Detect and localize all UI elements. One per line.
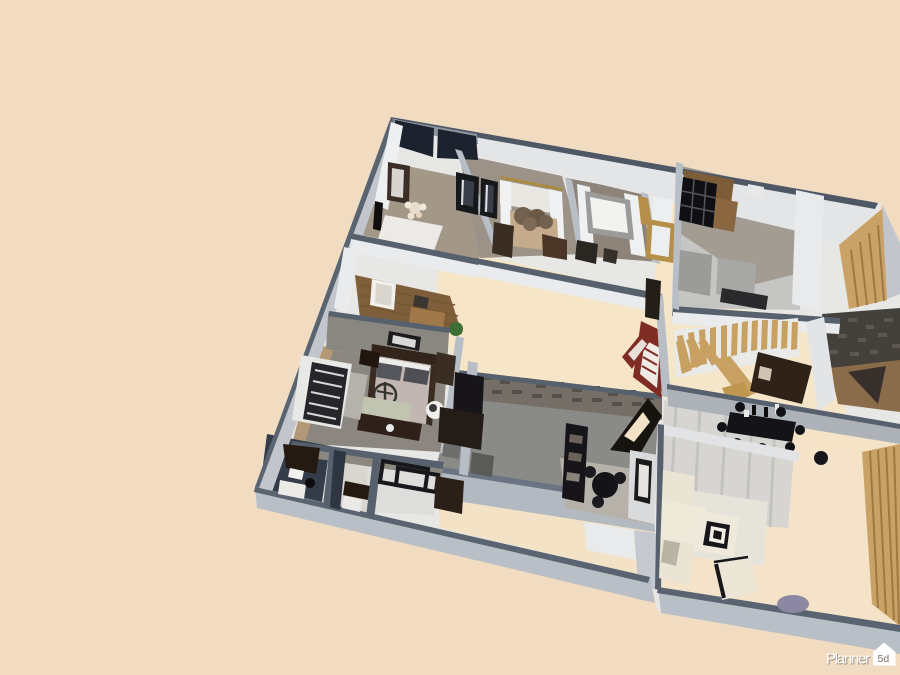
svg-text:5d: 5d <box>878 653 890 665</box>
svg-text:Planner: Planner <box>826 651 870 668</box>
